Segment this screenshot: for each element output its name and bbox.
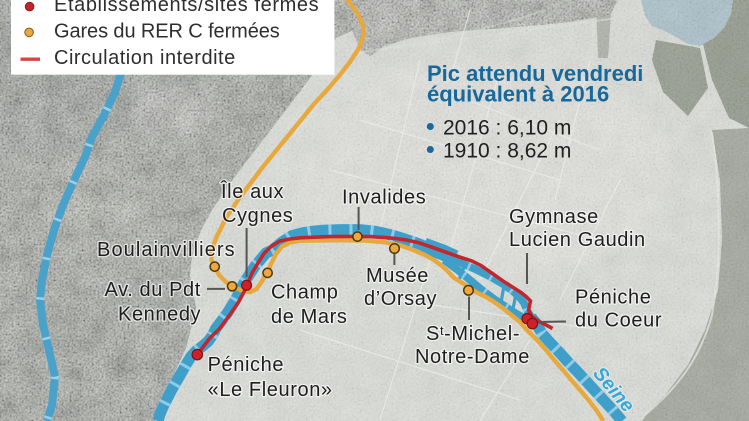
svg-text:Circulation interdite: Circulation interdite — [54, 47, 236, 69]
svg-text:«Le Fleuron»: «Le Fleuron» — [208, 379, 333, 401]
svg-text:Gymnase: Gymnase — [509, 206, 599, 228]
svg-text:Notre-Dame: Notre-Dame — [415, 346, 530, 368]
svg-text:Gares du RER C fermées: Gares du RER C fermées — [54, 21, 280, 43]
svg-text:équivalent à 2016: équivalent à 2016 — [427, 82, 609, 107]
svg-text:Invalides: Invalides — [342, 187, 426, 209]
svg-text:Île aux: Île aux — [220, 180, 284, 203]
svg-text:Péniche: Péniche — [575, 286, 651, 308]
svg-text:Kennedy: Kennedy — [118, 304, 201, 326]
svg-text:Établissements/sites fermés: Établissements/sites fermés — [54, 0, 319, 16]
svg-text:Lucien Gaudin: Lucien Gaudin — [509, 229, 646, 251]
svg-text:d’Orsay: d’Orsay — [364, 288, 437, 310]
svg-text:Péniche: Péniche — [208, 354, 284, 376]
svg-text:du Coeur: du Coeur — [575, 310, 662, 332]
svg-text:1910 : 8,62 m: 1910 : 8,62 m — [443, 139, 571, 162]
svg-text:Boulainvilliers: Boulainvilliers — [97, 239, 236, 261]
svg-text:Cygnes: Cygnes — [222, 205, 293, 227]
svg-text:Musée: Musée — [366, 265, 429, 287]
svg-text:2016 : 6,10 m: 2016 : 6,10 m — [443, 116, 571, 139]
svg-text:de Mars: de Mars — [271, 306, 347, 328]
svg-text:Champ: Champ — [271, 282, 338, 304]
svg-text:Av. du Pdt: Av. du Pdt — [105, 279, 201, 301]
